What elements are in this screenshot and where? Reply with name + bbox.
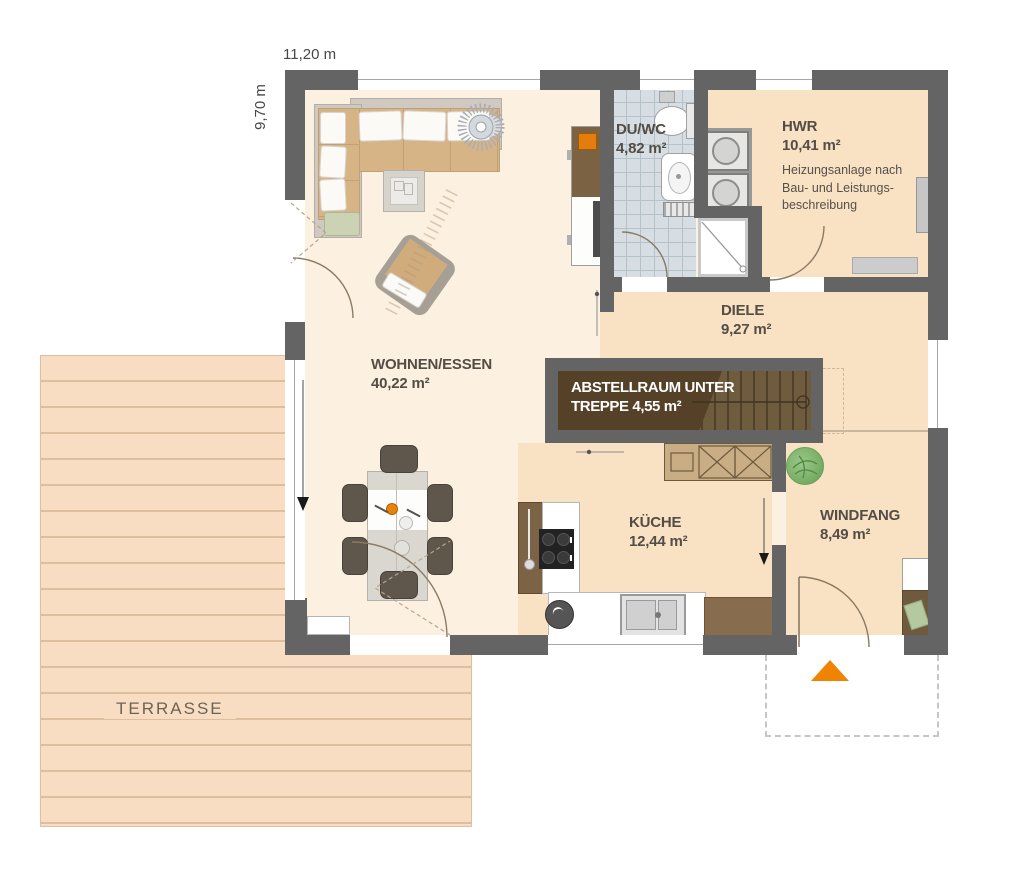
coffee-table-decor	[394, 181, 404, 191]
room-area: 4,82 m²	[616, 139, 666, 158]
dining-chair	[342, 537, 368, 575]
toilet-cistern	[659, 91, 675, 103]
coffee-table	[383, 170, 425, 212]
hwr-note: Heizungsanlage nach Bau- und Leistungs- …	[782, 162, 902, 215]
room-label-windfang: WINDFANG 8,49 m²	[820, 506, 900, 544]
exterior-wall	[694, 70, 756, 90]
exterior-wall	[928, 70, 948, 340]
window	[756, 70, 812, 90]
dimension-height: 9,70 m	[252, 84, 269, 130]
exterior-wall	[450, 635, 548, 655]
dining-chair	[380, 571, 418, 599]
entrance-marker	[811, 660, 849, 681]
interior-wall	[694, 90, 708, 218]
stair-wall	[545, 430, 823, 443]
sofa-pillow	[320, 112, 346, 144]
wardrobe-upper	[902, 558, 930, 592]
burner	[557, 533, 570, 546]
room-area: 8,49 m²	[820, 525, 900, 544]
interior-wall	[824, 277, 928, 292]
room-area: 10,41 m²	[782, 136, 840, 155]
bench-cushion	[903, 600, 929, 631]
sliding-glass-door	[285, 360, 305, 600]
room-name: WOHNEN/ESSEN	[371, 355, 492, 374]
bowl-highlight	[551, 606, 566, 622]
sideboard-handle	[567, 235, 571, 245]
room-area: 9,27 m²	[721, 320, 771, 339]
hwr-note-line: Bau- und Leistungs-	[782, 180, 902, 198]
room-name: HWR	[782, 117, 840, 136]
floor-plan: TERRASSE	[0, 0, 1024, 891]
washer-dryer-stack	[702, 128, 752, 216]
sink-drain	[676, 174, 681, 179]
exterior-wall	[540, 70, 640, 90]
washer-door	[712, 137, 740, 165]
room-label-abstellraum: ABSTELLRAUM UNTER TREPPE 4,55 m²	[571, 378, 734, 416]
potted-plant	[786, 447, 824, 485]
tv-sideboard-orange-box	[578, 133, 597, 150]
cooktop	[539, 529, 574, 569]
exterior-wall	[285, 598, 307, 655]
room-label-duwc: DU/WC 4,82 m²	[616, 120, 666, 158]
burner	[542, 551, 555, 564]
sofa-pillow	[402, 110, 446, 141]
stair-wall	[545, 358, 823, 371]
shower-tray	[698, 218, 748, 277]
stair-wall	[811, 358, 823, 443]
dining-chair	[427, 537, 453, 575]
terrace-label: TERRASSE	[104, 699, 236, 719]
room-area: TREPPE 4,55 m²	[571, 397, 734, 416]
room-name: DU/WC	[616, 120, 666, 139]
room-name: DIELE	[721, 301, 771, 320]
sofa-chaise-cushion	[324, 212, 360, 236]
room-label-wohnen: WOHNEN/ESSEN 40,22 m²	[371, 355, 492, 393]
hwr-note-line: beschreibung	[782, 197, 902, 215]
room-name: WINDFANG	[820, 506, 900, 525]
sofa-pillow	[358, 110, 402, 141]
corner-window	[307, 616, 350, 635]
room-name: ABSTELLRAUM UNTER	[571, 378, 734, 397]
sofa-pillow	[319, 145, 347, 178]
window	[928, 340, 948, 428]
hwr-note-line: Heizungsanlage nach	[782, 162, 902, 180]
window	[358, 70, 540, 90]
terrace-door-opening	[285, 200, 305, 322]
stair-wall	[545, 358, 558, 443]
kitchen-sink	[620, 594, 686, 638]
sofa-pillow	[447, 111, 491, 142]
dryer-door	[712, 179, 740, 207]
room-label-kueche: KÜCHE 12,44 m²	[629, 513, 687, 551]
window	[640, 70, 694, 90]
exterior-wall	[928, 428, 948, 655]
faucet	[655, 612, 661, 618]
fruit-bowl	[386, 503, 398, 515]
bathroom-sink	[661, 153, 697, 201]
dimension-width: 11,20 m	[283, 46, 336, 63]
dining-chair	[427, 484, 453, 522]
sideboard-handle	[567, 150, 571, 160]
dining-chair	[380, 445, 418, 473]
interior-wall	[748, 206, 762, 278]
interior-wall	[772, 545, 786, 637]
burner	[542, 533, 555, 546]
terrace-door-opening	[350, 635, 450, 655]
room-area: 40,22 m²	[371, 374, 492, 393]
stair-continuation-dashed	[823, 368, 844, 434]
room-name: KÜCHE	[629, 513, 687, 532]
front-door-opening	[797, 635, 904, 655]
burner	[557, 551, 570, 564]
towel-radiator	[663, 202, 696, 217]
plate	[399, 516, 413, 530]
tv-screen	[593, 201, 600, 257]
coffee-table-decor	[404, 183, 413, 195]
decor-bowl	[545, 600, 574, 629]
x-sideboard	[664, 443, 774, 481]
cooktop-knobs	[570, 555, 572, 561]
sink-basin	[626, 600, 656, 630]
exterior-wall	[285, 70, 305, 200]
interior-wall	[772, 443, 786, 492]
exterior-wall	[703, 635, 797, 655]
room-area: 12,44 m²	[629, 532, 687, 551]
door-opening	[770, 277, 824, 292]
plant-leaves	[787, 448, 823, 484]
hwr-shelf	[852, 257, 918, 274]
interior-wall	[600, 277, 622, 292]
towel-rail-knob	[524, 559, 535, 570]
interior-wall	[667, 277, 770, 292]
cooktop-knobs	[570, 537, 572, 543]
x-sideboard-pattern	[665, 444, 773, 480]
sofa-pillow	[319, 178, 347, 211]
entrance-porch-outline	[765, 655, 939, 737]
dining-chair	[342, 484, 368, 522]
kitchen-window	[548, 635, 703, 655]
room-label-diele: DIELE 9,27 m²	[721, 301, 771, 339]
door-opening	[622, 277, 667, 292]
exterior-wall	[285, 322, 305, 360]
towel-rail	[528, 509, 530, 561]
kitchen-cabinet-wood	[704, 597, 774, 639]
room-label-hwr: HWR 10,41 m²	[782, 117, 840, 155]
candle	[394, 540, 410, 556]
